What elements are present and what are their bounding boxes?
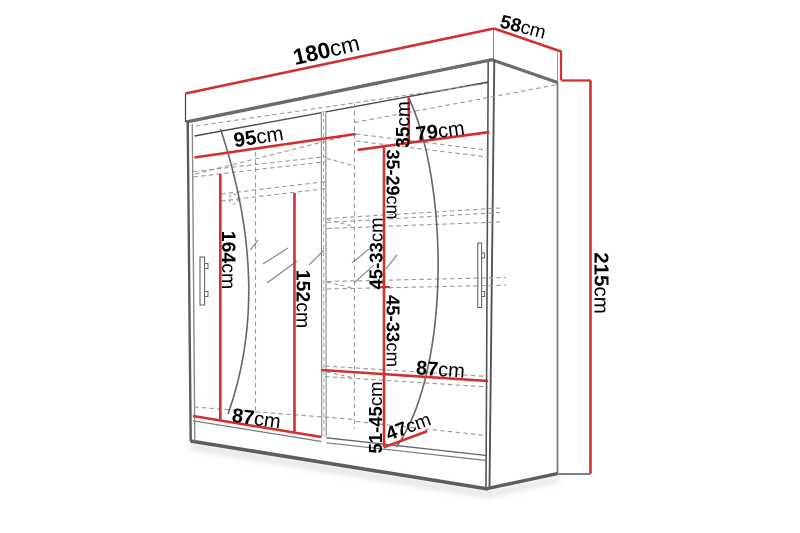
- svg-text:45-33cm: 45-33cm: [383, 295, 404, 367]
- svg-text:164cm: 164cm: [217, 231, 239, 290]
- svg-text:45-33cm: 45-33cm: [366, 218, 387, 290]
- svg-text:35-29cm: 35-29cm: [383, 149, 403, 219]
- svg-text:152cm: 152cm: [292, 270, 314, 329]
- svg-text:215cm: 215cm: [590, 252, 613, 314]
- svg-text:51-45cm: 51-45cm: [365, 382, 386, 454]
- svg-text:35cm: 35cm: [394, 101, 415, 147]
- svg-text:87cm: 87cm: [415, 357, 465, 382]
